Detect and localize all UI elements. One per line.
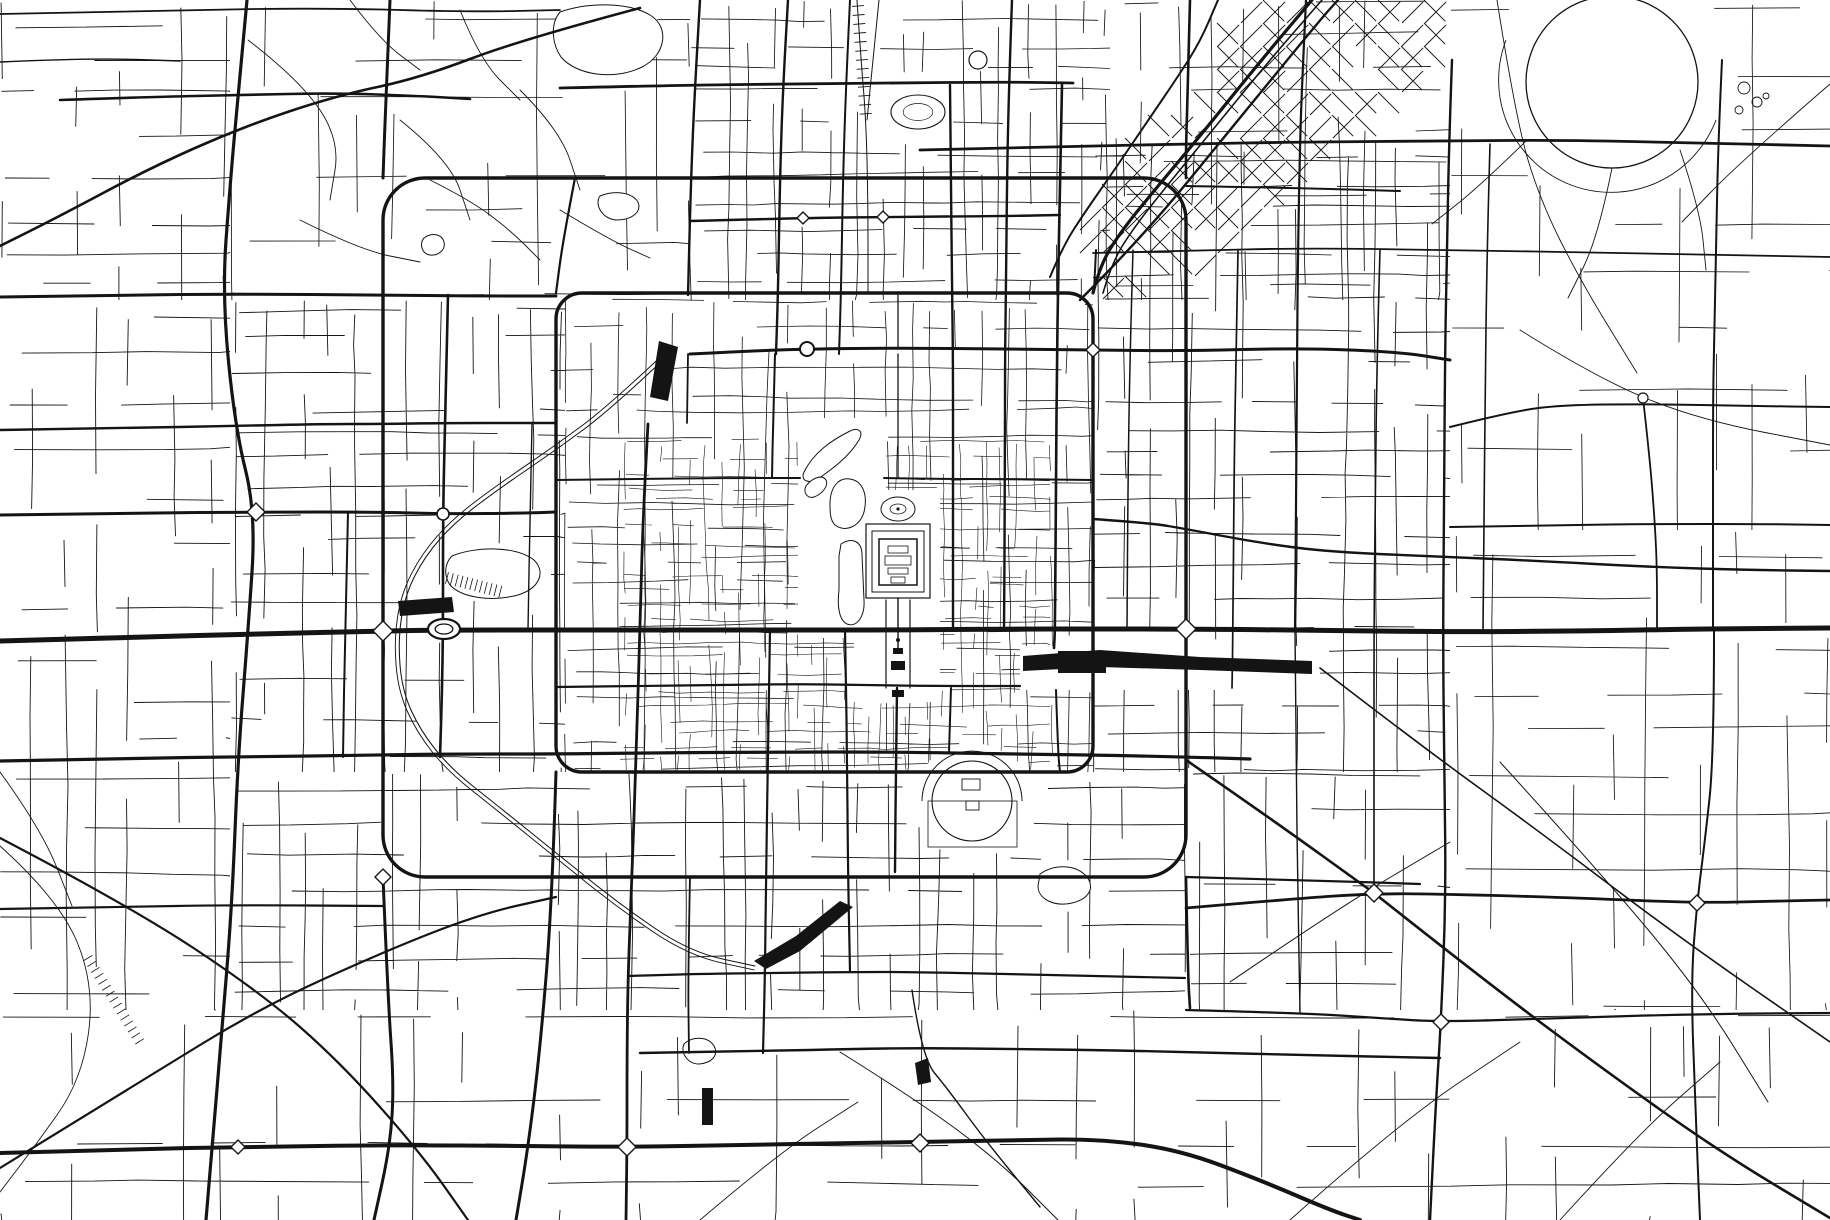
map-viewport <box>0 0 1830 1220</box>
city-street-map[interactable] <box>0 0 1830 1220</box>
